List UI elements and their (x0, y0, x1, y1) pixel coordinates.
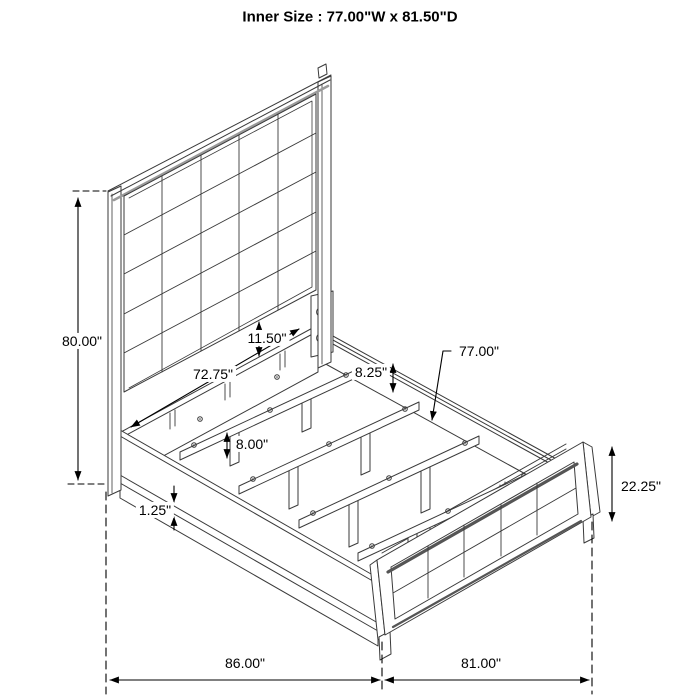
dim-inner-width-label: 72.75" (190, 366, 236, 382)
dimension-diagram: Inner Size : 77.00"W x 81.50"D 80.00" 11… (0, 0, 700, 700)
bed-frame-drawing (0, 0, 700, 700)
dim-overall-depth-label: 86.00" (222, 655, 268, 671)
dim-rail-trim-label: 1.25" (136, 502, 174, 518)
dim-slat-spacing-label: 8.00" (233, 436, 271, 452)
dim-panel-to-rail-gap-label: 11.50" (245, 330, 290, 346)
dim-rail-to-slat-label: 8.25" (352, 364, 390, 380)
dim-overall-width-label: 81.00" (458, 655, 504, 671)
dim-headboard-height-label: 80.00" (59, 333, 105, 349)
inner-size-title: Inner Size : 77.00"W x 81.50"D (242, 9, 457, 26)
dim-slat-length-label: 77.00" (456, 343, 502, 359)
dim-footboard-height-label: 22.25" (618, 478, 664, 494)
left-side-rail (120, 430, 378, 646)
